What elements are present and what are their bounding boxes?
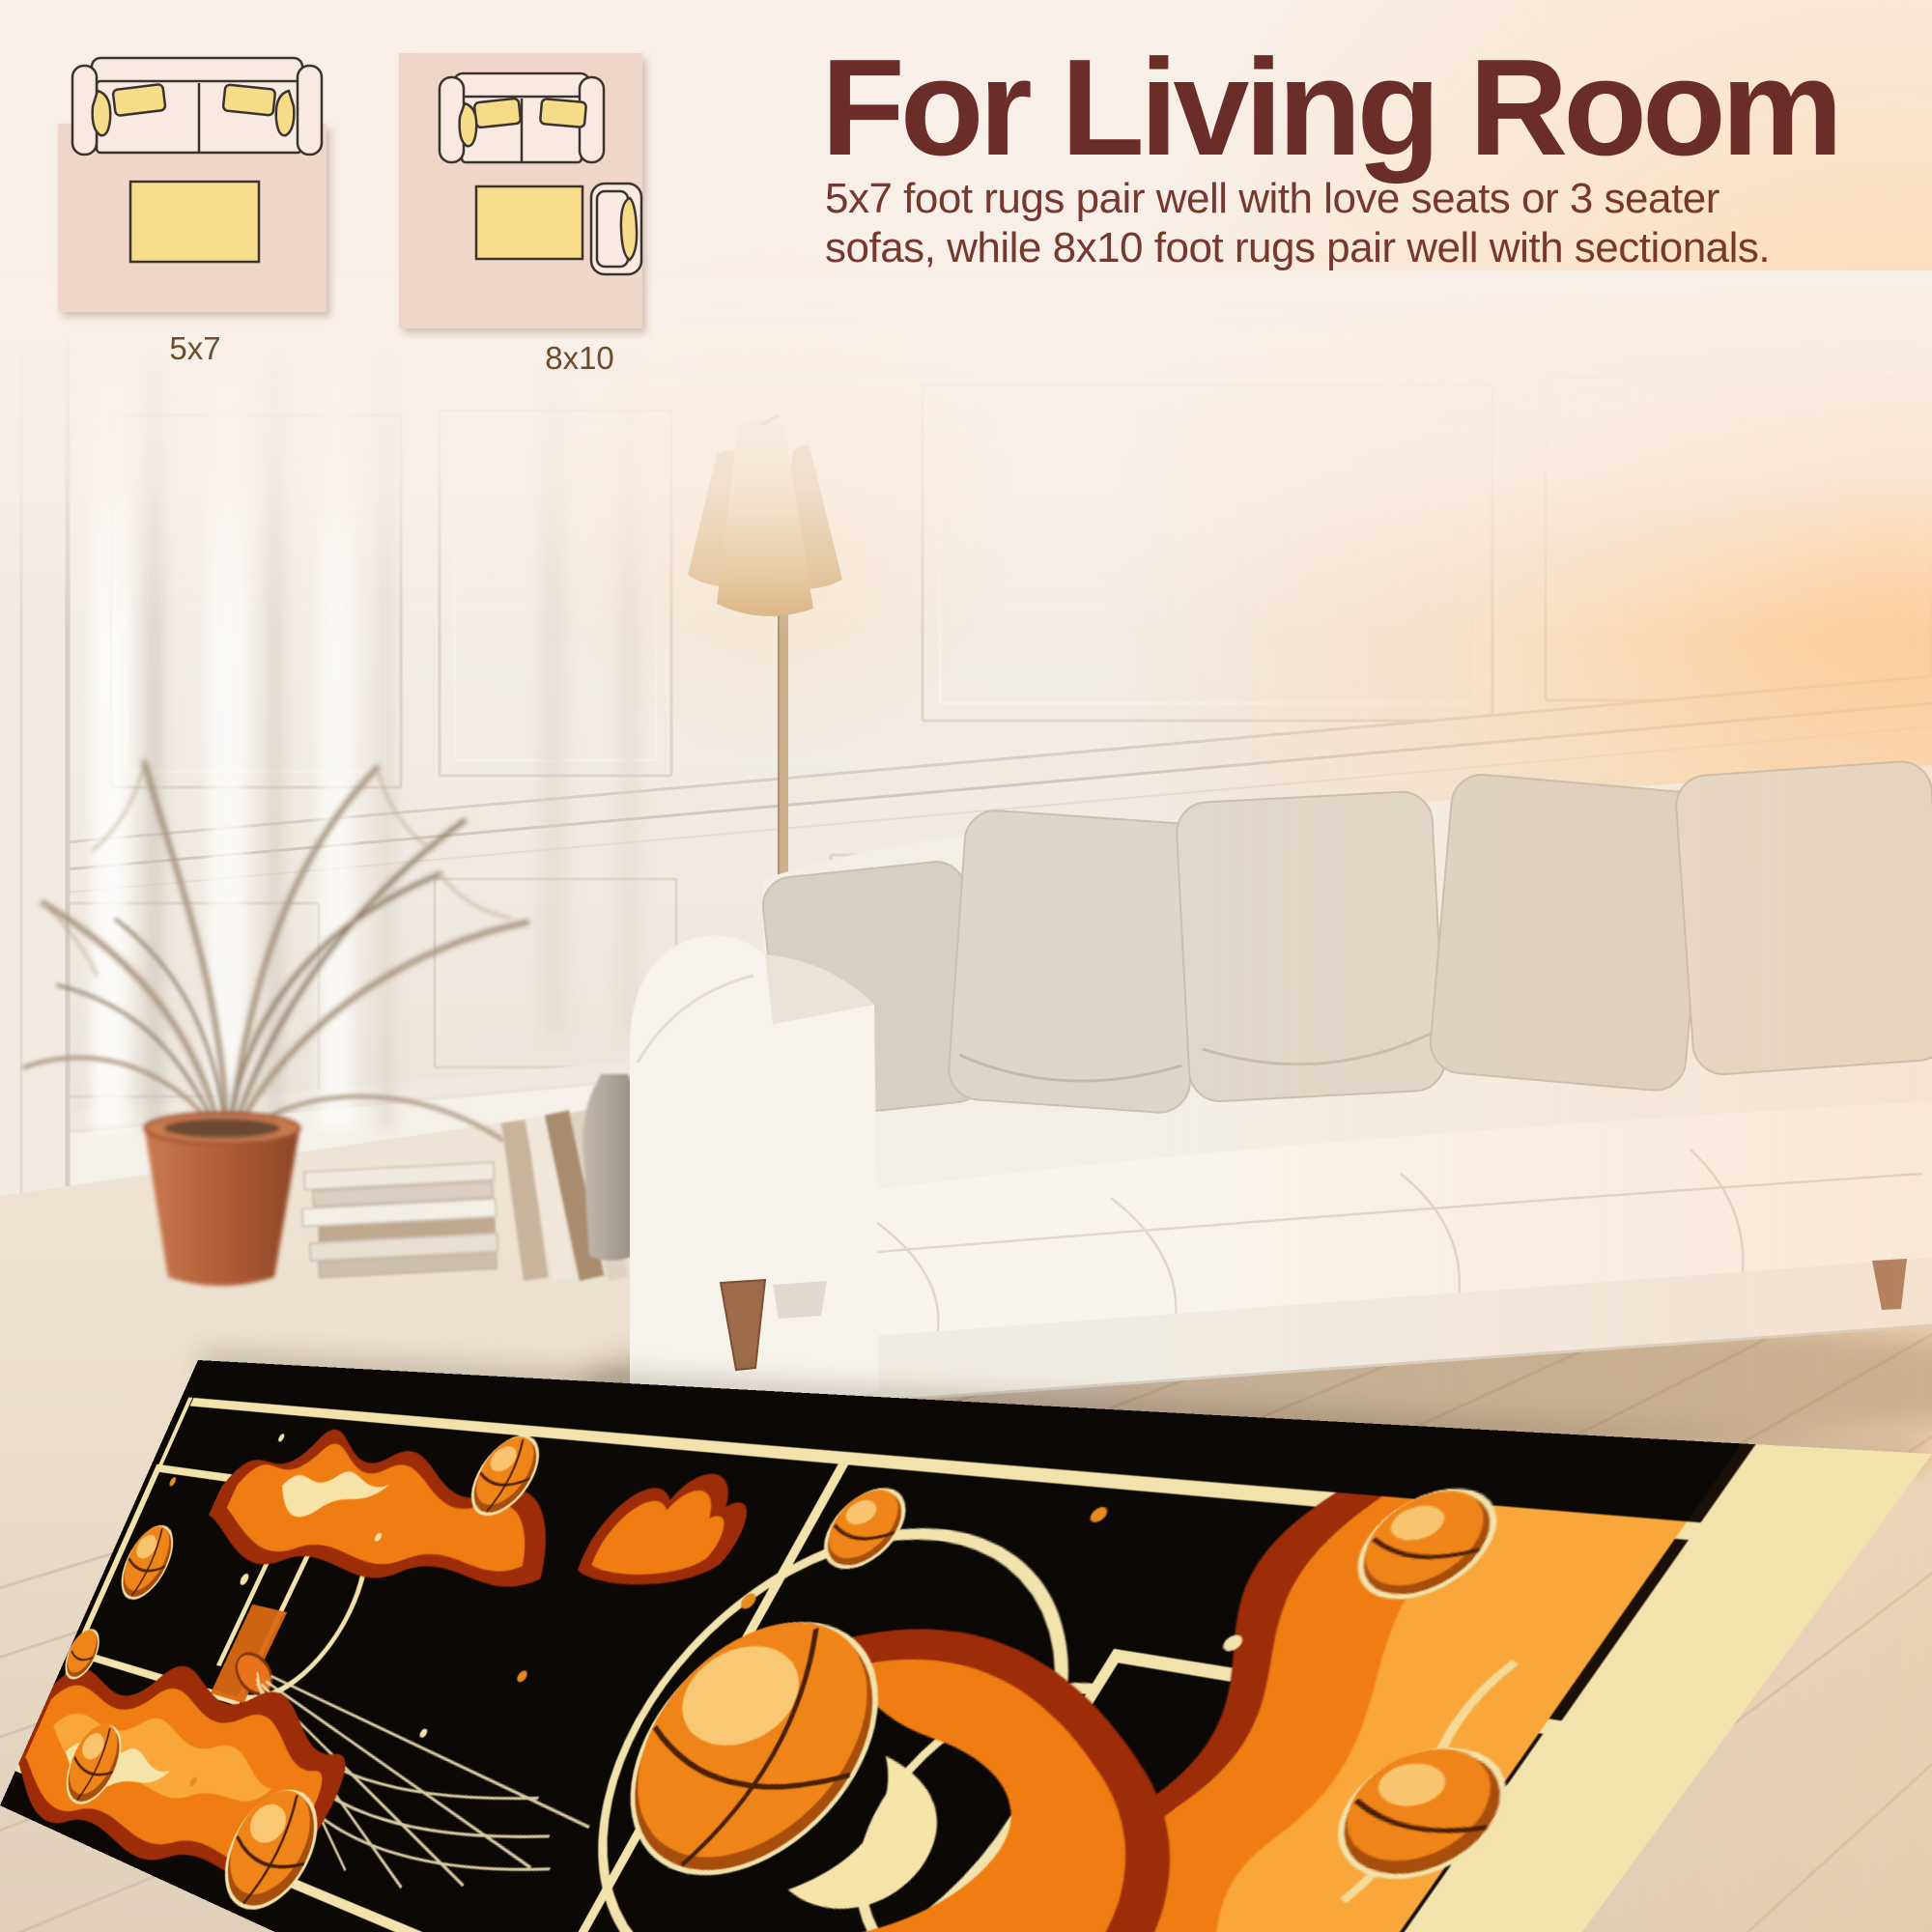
description-line-2: sofas, while 8x10 foot rugs pair well wi…	[825, 224, 1770, 271]
product-infographic: For Living Room 5x7 foot rugs pair well …	[0, 0, 1932, 1932]
sofa-leg-chrome	[773, 1281, 827, 1319]
coffee-table-icon	[476, 186, 582, 259]
size-label-5x7: 5x7	[118, 330, 272, 367]
loveseat-sofa-icon	[440, 73, 604, 162]
sofa-side-pillow-icon	[460, 103, 477, 146]
basketball-rug	[0, 1360, 1932, 1932]
size-diagram-8x10	[391, 43, 652, 338]
armchair-icon	[591, 184, 641, 274]
page-title: For Living Room	[821, 29, 1838, 187]
description: 5x7 foot rugs pair well with love seats …	[825, 174, 1770, 272]
size-diagram-5x7	[39, 39, 348, 328]
plant-pot	[145, 1113, 299, 1286]
loveseat-sofa-icon	[72, 58, 322, 155]
sofa-pillow-icon	[474, 99, 521, 128]
rug-design	[0, 1360, 1932, 1932]
coffee-table-icon	[130, 182, 259, 262]
size-label-8x10: 8x10	[502, 340, 657, 377]
sofa-side-pillow-icon	[93, 91, 111, 135]
sofa-pillow-icon	[540, 99, 586, 128]
sofa-pillow-icon	[223, 84, 276, 115]
description-line-1: 5x7 foot rugs pair well with love seats …	[825, 175, 1719, 222]
header: For Living Room 5x7 foot rugs pair well …	[0, 0, 1932, 386]
armchair-pillow-icon	[621, 198, 637, 260]
sofa-side-pillow-icon	[276, 91, 295, 135]
sofa-pillow-icon	[113, 84, 166, 116]
